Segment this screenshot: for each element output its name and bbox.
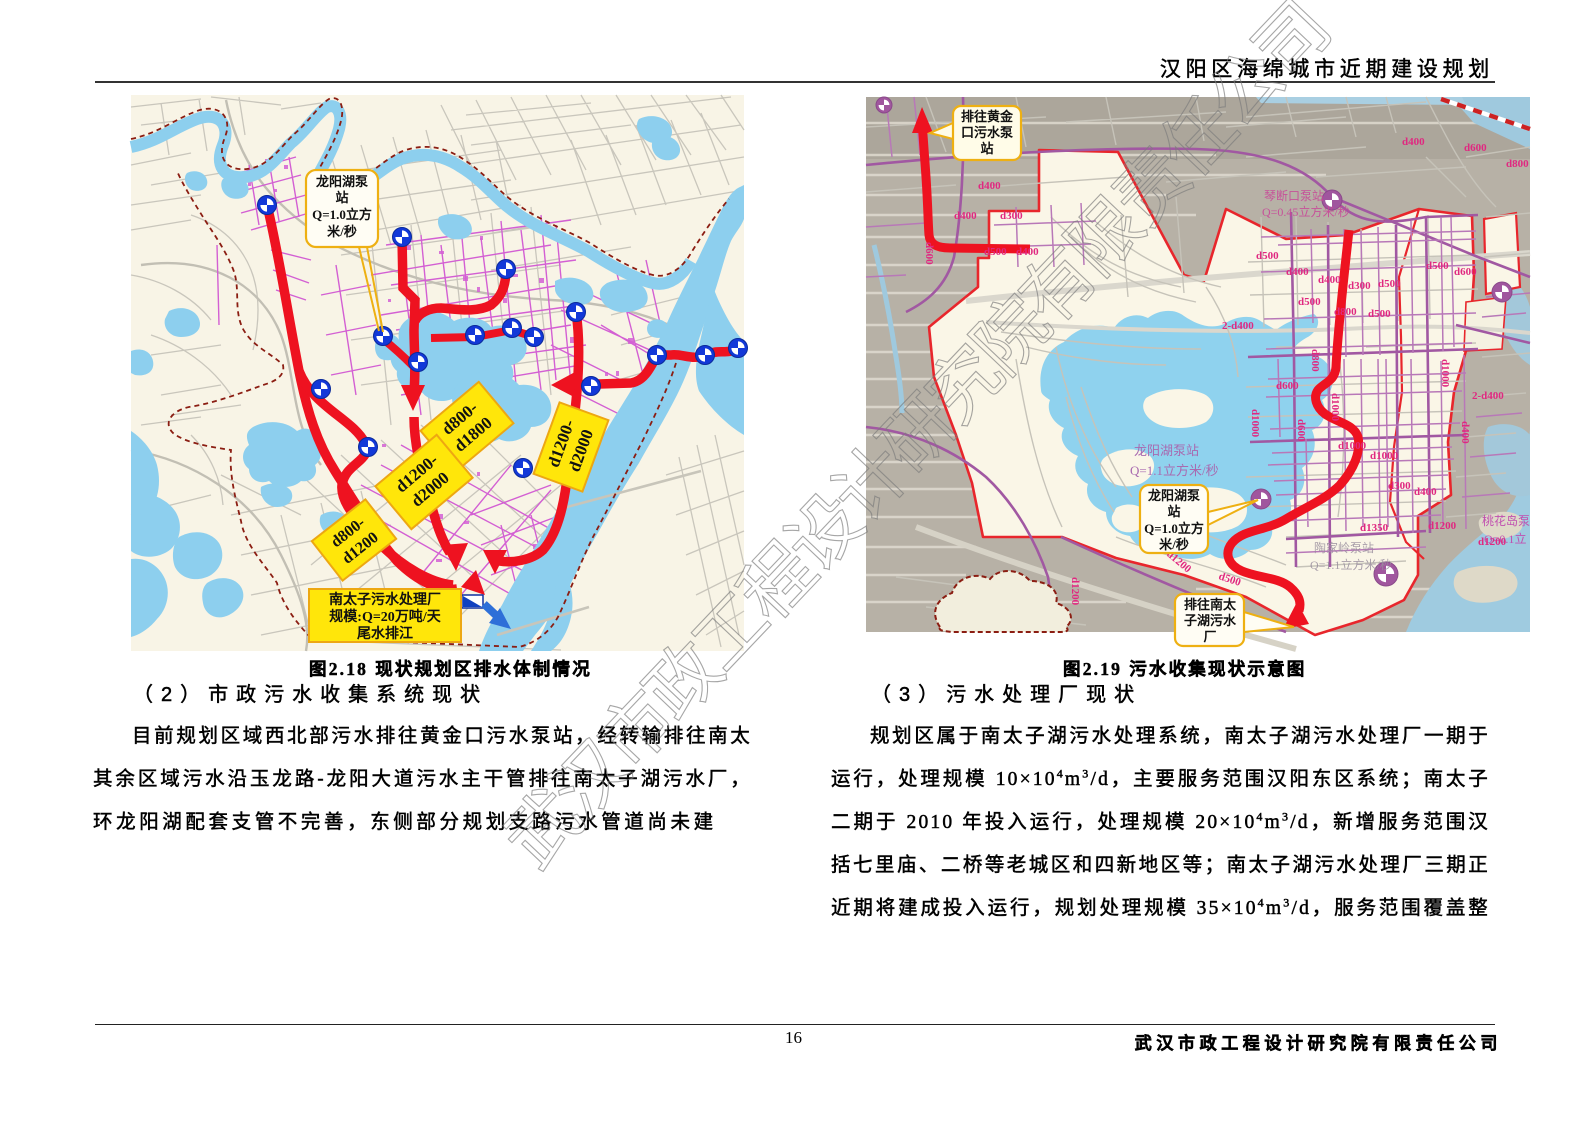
svg-text:d500: d500 xyxy=(984,246,1007,258)
svg-text:子湖污水: 子湖污水 xyxy=(1184,613,1237,628)
svg-text:站: 站 xyxy=(335,190,348,205)
svg-text:d300: d300 xyxy=(1388,480,1411,492)
svg-text:琴断口泵站: 琴断口泵站 xyxy=(1264,188,1324,203)
svg-text:d400: d400 xyxy=(1318,274,1341,286)
svg-text:Q=1.0立方: Q=1.0立方 xyxy=(1144,521,1204,536)
svg-text:d1000: d1000 xyxy=(1249,409,1261,438)
svg-text:d1000: d1000 xyxy=(1329,393,1341,422)
svg-text:米/秒: 米/秒 xyxy=(1159,537,1189,552)
svg-text:d500: d500 xyxy=(1298,296,1321,308)
svg-text:南太子污水处理厂: 南太子污水处理厂 xyxy=(329,591,441,607)
svg-text:尾水排江: 尾水排江 xyxy=(357,625,413,641)
svg-text:d400: d400 xyxy=(1402,136,1425,148)
svg-text:2-d400: 2-d400 xyxy=(1222,320,1254,332)
svg-text:排往黄金: 排往黄金 xyxy=(961,109,1014,124)
svg-text:d800: d800 xyxy=(1309,349,1321,372)
svg-text:厂: 厂 xyxy=(1203,629,1216,644)
svg-text:d500: d500 xyxy=(1256,250,1279,262)
svg-text:d400: d400 xyxy=(954,210,977,222)
svg-text:d400: d400 xyxy=(1459,421,1471,444)
svg-text:d1200: d1200 xyxy=(1478,536,1507,548)
svg-text:d500: d500 xyxy=(1368,308,1391,320)
svg-text:d1000: d1000 xyxy=(1370,450,1399,462)
svg-text:龙阳湖泵: 龙阳湖泵 xyxy=(1148,488,1200,503)
svg-text:d600: d600 xyxy=(1276,380,1299,392)
svg-text:Q=1.1立方米/秒: Q=1.1立方米/秒 xyxy=(1130,463,1219,478)
svg-text:d1200: d1200 xyxy=(1069,577,1081,606)
svg-text:d300: d300 xyxy=(1000,210,1023,222)
svg-text:d500: d500 xyxy=(1378,278,1401,290)
svg-text:d600: d600 xyxy=(1295,419,1307,442)
svg-text:d400: d400 xyxy=(1286,266,1309,278)
svg-text:Q=1.1立方米/秒: Q=1.1立方米/秒 xyxy=(1310,557,1392,572)
svg-text:规模:Q=20万吨/天: 规模:Q=20万吨/天 xyxy=(329,608,441,625)
svg-text:d500: d500 xyxy=(1426,260,1449,272)
svg-text:d1000: d1000 xyxy=(1338,440,1367,452)
svg-text:d600: d600 xyxy=(1464,142,1487,154)
svg-text:米/秒: 米/秒 xyxy=(327,224,357,239)
svg-text:Q=0.45立方米/秒: Q=0.45立方米/秒 xyxy=(1262,204,1350,219)
svg-text:口污水泵: 口污水泵 xyxy=(961,125,1013,140)
svg-text:2-d400: 2-d400 xyxy=(1472,390,1504,402)
svg-text:陶家岭泵站: 陶家岭泵站 xyxy=(1314,540,1374,555)
svg-text:d800: d800 xyxy=(1334,306,1357,318)
svg-text:站: 站 xyxy=(1167,504,1180,519)
svg-text:d400: d400 xyxy=(1414,486,1437,498)
svg-text:d1350: d1350 xyxy=(1360,522,1389,534)
svg-text:d600: d600 xyxy=(923,242,935,265)
svg-text:d800: d800 xyxy=(1506,158,1529,170)
svg-text:龙阳湖泵站: 龙阳湖泵站 xyxy=(1134,443,1199,458)
svg-text:Q=1.0立方: Q=1.0立方 xyxy=(312,207,372,222)
svg-text:d300: d300 xyxy=(1348,280,1371,292)
svg-text:d1200: d1200 xyxy=(1428,520,1457,532)
svg-text:桃花岛泵: 桃花岛泵 xyxy=(1482,513,1530,528)
svg-text:d600: d600 xyxy=(1454,266,1477,278)
svg-text:d400: d400 xyxy=(978,180,1001,192)
svg-text:排往南太: 排往南太 xyxy=(1184,597,1237,612)
svg-text:d1000: d1000 xyxy=(1439,359,1451,388)
svg-text:站: 站 xyxy=(980,141,993,156)
svg-text:龙阳湖泵: 龙阳湖泵 xyxy=(316,174,368,189)
